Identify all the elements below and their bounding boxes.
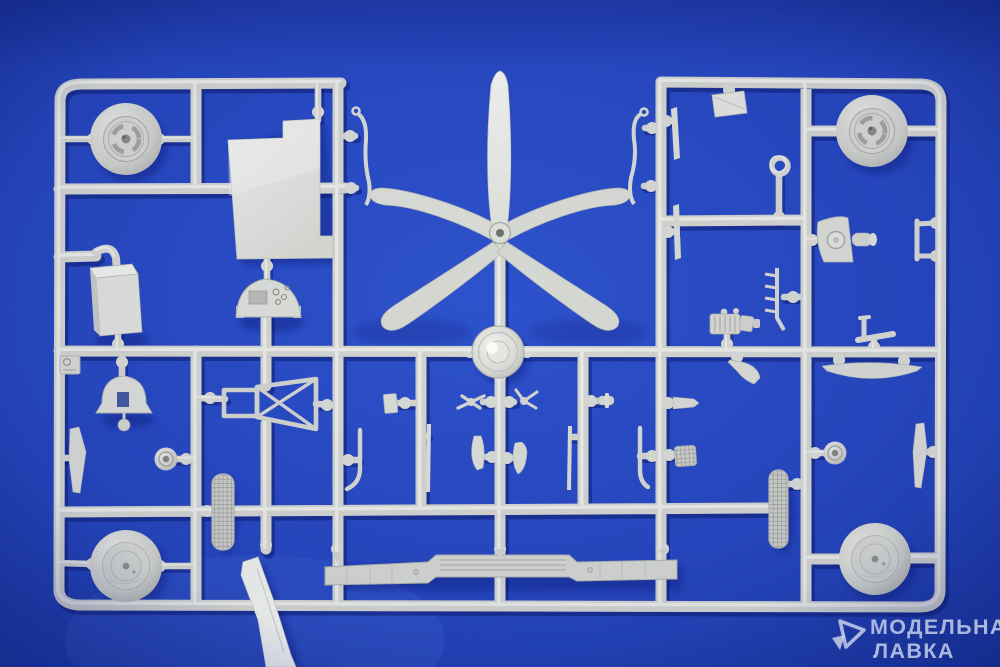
photo-canvas: МОДЕЛЬНАЯ ЛАВКА	[0, 0, 1000, 667]
watermark-line1: МОДЕЛЬНАЯ	[870, 615, 1000, 639]
vignette-overlay	[0, 0, 1000, 667]
sprue-photo: МОДЕЛЬНАЯ ЛАВКА	[0, 0, 1000, 667]
watermark-line2: ЛАВКА	[873, 639, 955, 663]
